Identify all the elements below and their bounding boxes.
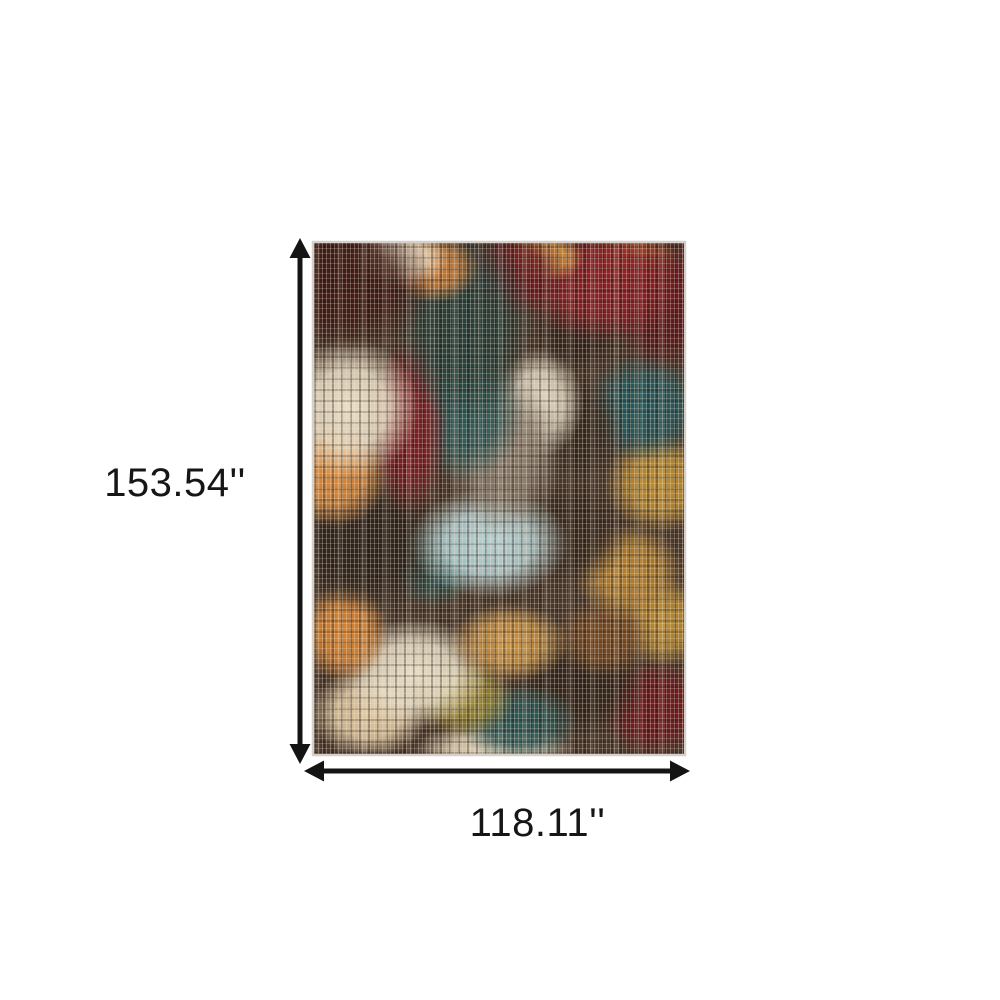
width-dimension-label: 118.11'' [445, 801, 630, 846]
arrowhead-up-icon [290, 238, 311, 258]
arrowhead-left-icon [304, 761, 324, 782]
height-dimension-label: 153.54'' [85, 461, 265, 506]
height-dimension-arrow [287, 237, 313, 765]
rug-image [312, 241, 686, 756]
arrowhead-right-icon [670, 761, 690, 782]
width-dimension-arrow [303, 758, 691, 784]
product-dimension-diagram: 153.54'' 118.11'' [0, 0, 1000, 1000]
